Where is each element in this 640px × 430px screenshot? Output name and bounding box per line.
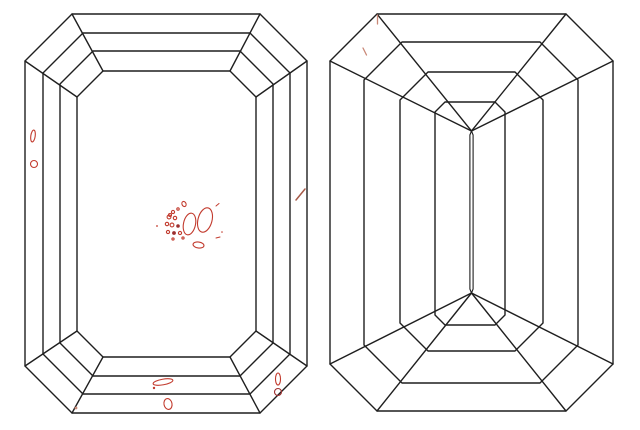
pavilion-view-pavilion-facet-line <box>472 293 614 364</box>
inclusion-mark <box>193 241 205 248</box>
crown-view-step-ring-1 <box>43 33 290 394</box>
pavilion-view-keel-line <box>472 131 474 293</box>
clarity-plot-canvas <box>0 0 640 430</box>
pavilion-view-keel-line <box>470 131 472 293</box>
inclusion-mark <box>165 222 168 225</box>
crown-view-corner-facet-line <box>230 357 260 413</box>
crown-view-step-ring-3 <box>77 71 256 357</box>
inclusion-mark <box>75 407 78 410</box>
inclusion-mark <box>166 230 169 233</box>
inclusion-mark <box>216 237 220 238</box>
inclusion-mark <box>176 224 180 228</box>
inclusion-mark <box>221 231 223 233</box>
inclusion-mark <box>296 189 305 200</box>
inclusion-mark <box>177 208 179 210</box>
inclusion-mark <box>216 204 219 207</box>
crown-view-corner-facet-line <box>230 14 260 71</box>
pavilion-view-pavilion-facet-line <box>472 293 567 411</box>
crown-view-inclusion-marks <box>30 130 305 410</box>
inclusion-mark <box>276 373 281 385</box>
crown-view-outline <box>25 14 307 413</box>
crown-view-corner-facet-line <box>25 61 77 97</box>
crown-view-corner-facet-line <box>25 331 77 366</box>
inclusion-mark <box>172 231 176 235</box>
pavilion-view-pavilion-facet-line <box>330 293 472 364</box>
crown-view-corner-facet-line <box>72 14 103 71</box>
inclusion-mark <box>181 212 197 236</box>
inclusion-mark <box>171 210 174 213</box>
inclusion-mark <box>31 161 38 168</box>
inclusion-mark <box>173 216 176 219</box>
crown-view-corner-facet-line <box>256 61 307 97</box>
crown-view-corner-facet-line <box>72 357 103 413</box>
inclusion-mark <box>30 130 36 142</box>
inclusion-mark <box>153 387 155 389</box>
inclusion-mark <box>195 206 215 234</box>
diamond-clarity-plot <box>0 0 640 430</box>
inclusion-mark <box>172 238 174 240</box>
inclusion-mark <box>181 201 187 207</box>
inclusion-mark <box>163 398 173 410</box>
crown-view-corner-facet-line <box>256 331 307 366</box>
inclusion-mark <box>363 48 367 55</box>
crown-view-step-ring-2 <box>60 51 273 376</box>
pavilion-view-step-ring-2 <box>400 72 543 351</box>
crown-view-step-ring-0 <box>25 14 307 413</box>
inclusion-mark <box>170 223 174 227</box>
inclusion-mark <box>156 225 158 227</box>
inclusion-mark <box>182 237 184 239</box>
pavilion-view-pavilion-facet-line <box>377 293 472 411</box>
pavilion-view-outline <box>330 14 613 411</box>
inclusion-mark <box>153 378 174 387</box>
inclusion-mark <box>178 231 181 234</box>
